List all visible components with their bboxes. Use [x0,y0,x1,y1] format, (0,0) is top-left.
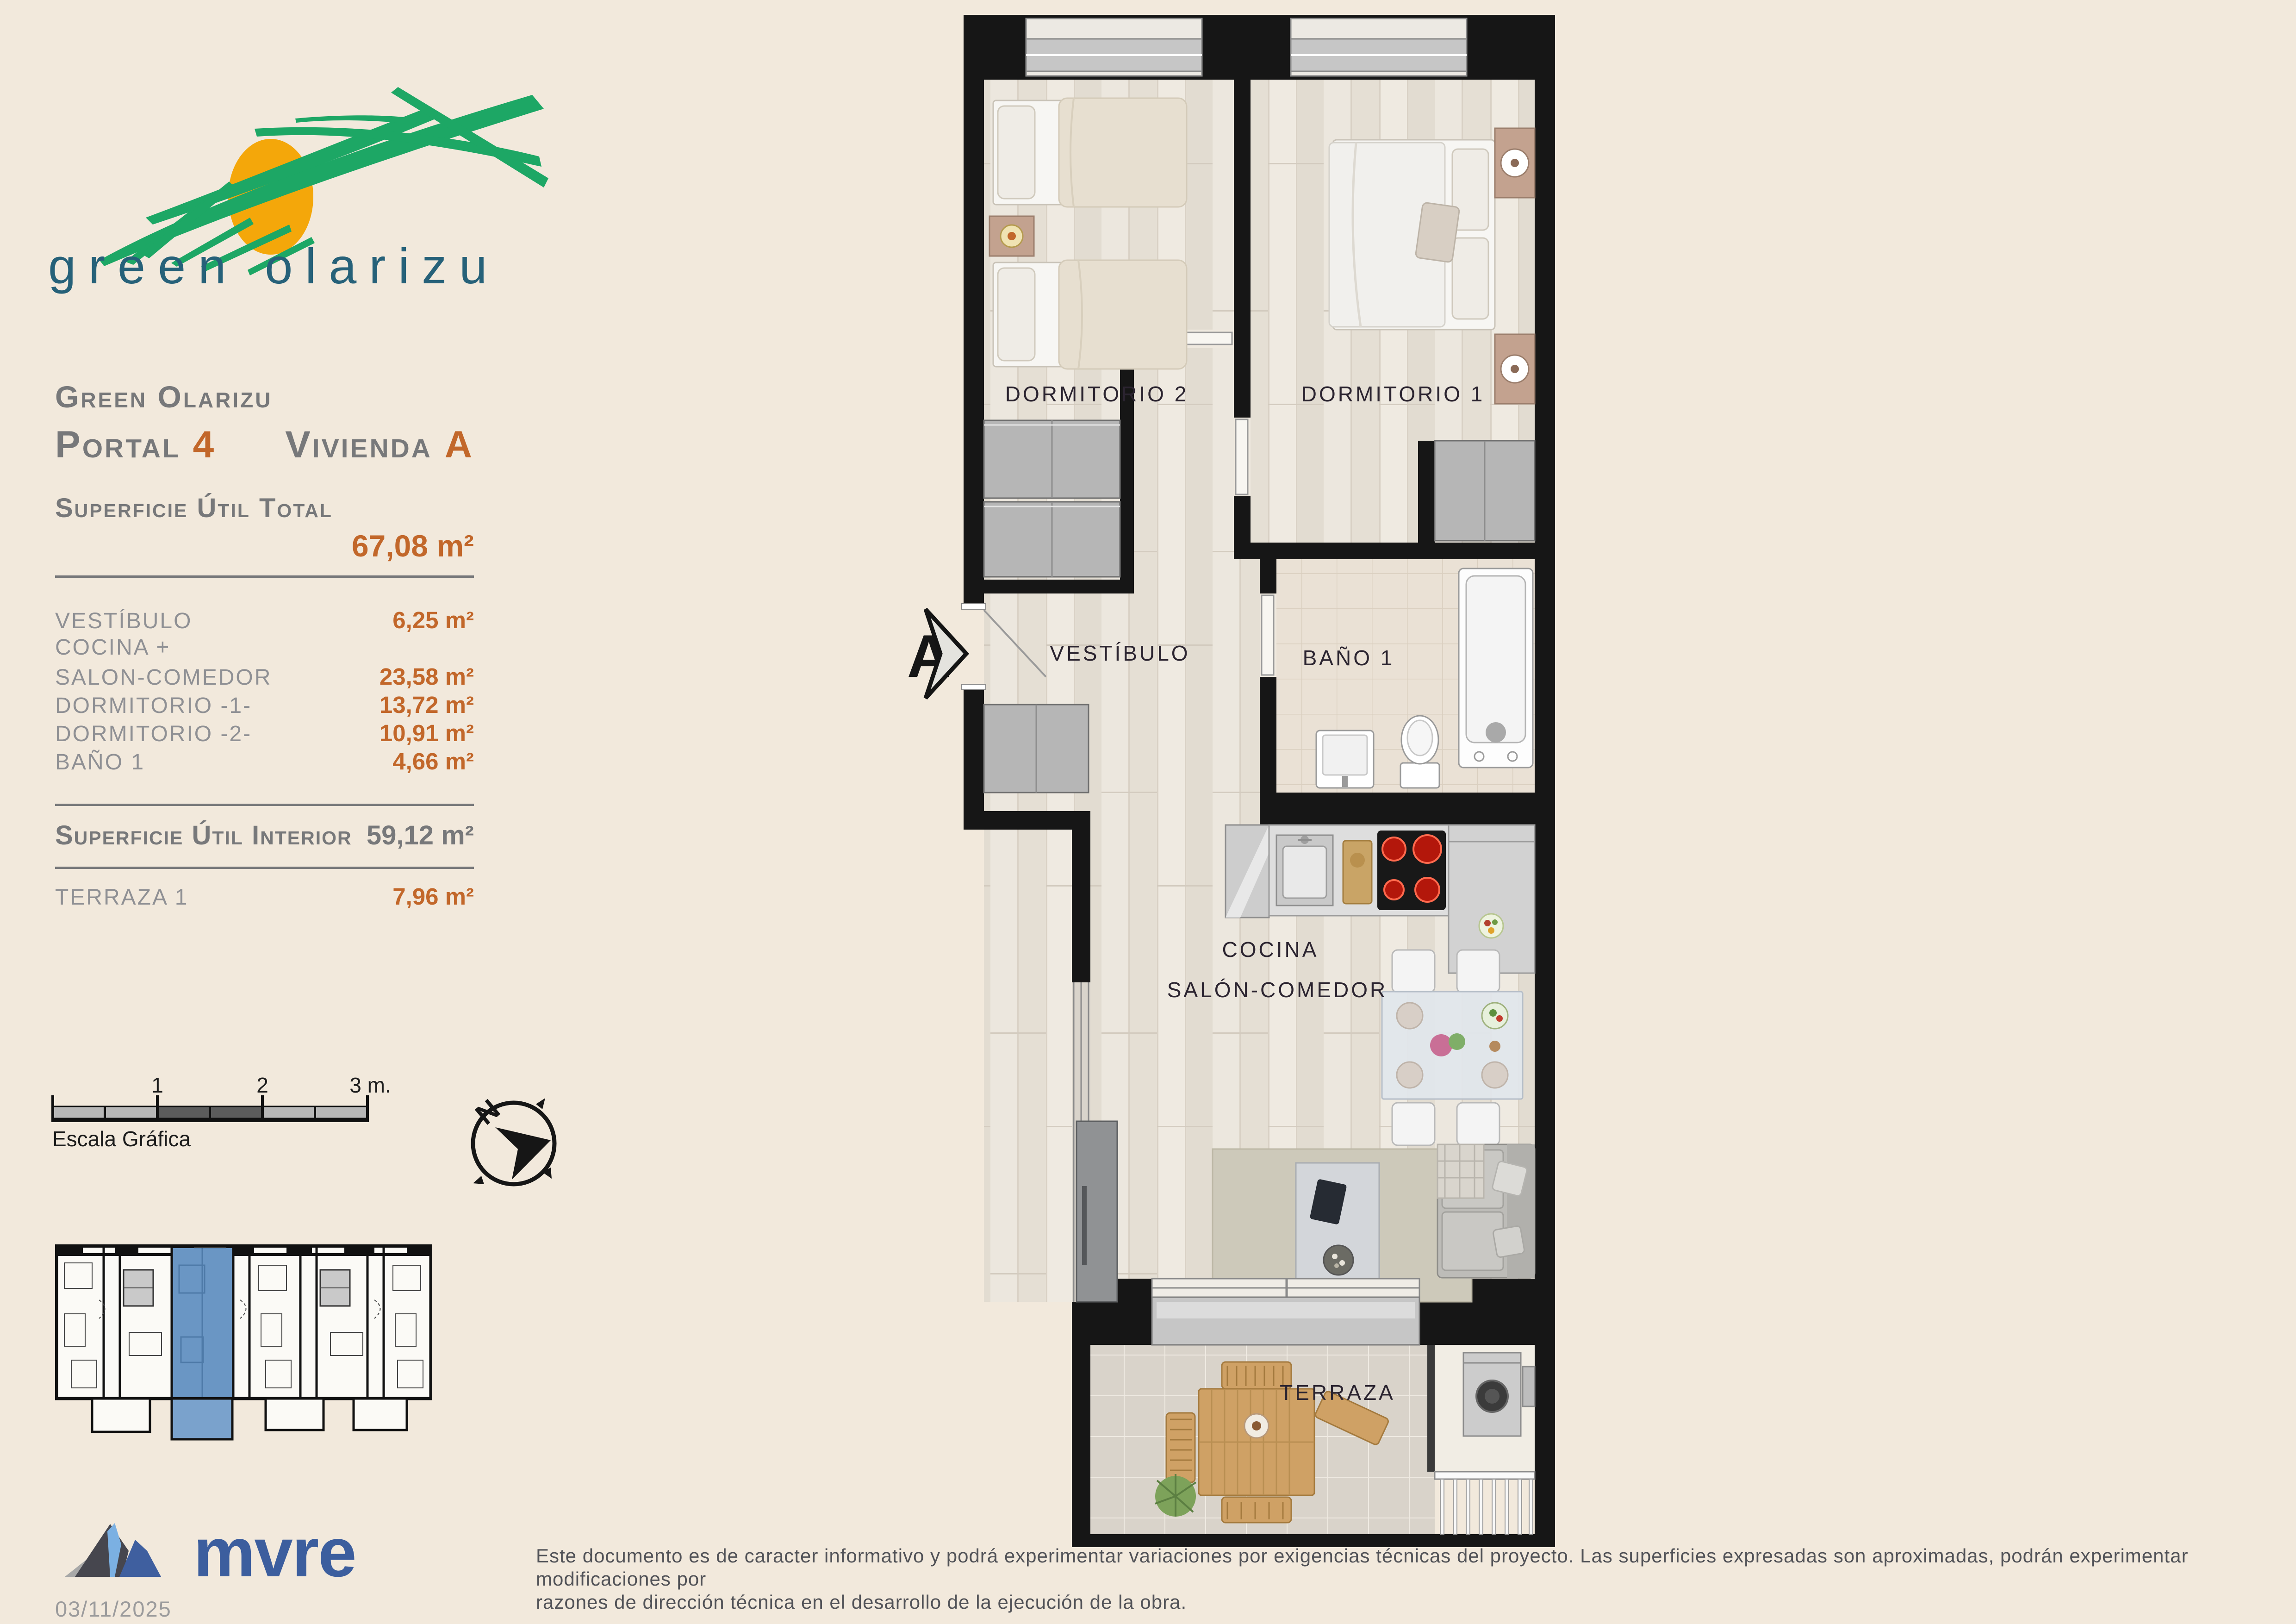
scale-bar-title: Escala Gráfica [52,1127,191,1151]
room-label-bano: BAÑO 1 [1303,646,1395,670]
table-row: SALON-COMEDOR 23,58 m² [55,663,474,691]
project-title: Green Olarizu [55,381,474,413]
floorplan-document: green olarizu Green Olarizu Portal 4 Viv… [0,0,2296,1624]
table-row: DORMITORIO -2- 10,91 m² [55,719,474,748]
terraza-row: TERRAZA 1 7,96 m² [55,883,474,911]
graphic-scale-bar: 1 2 3 m. Escala Gráfica [51,1073,421,1152]
portal-label: Portal [55,423,180,467]
surface-info-panel: Green Olarizu Portal 4 Vivienda A Superf… [55,381,474,911]
divider [55,867,474,869]
disclaimer-line-1: Este documento es de caracter informativ… [536,1544,2295,1591]
room-label-cocina: COCINA [1222,937,1319,962]
scale-tick-label: 3 m. [349,1073,391,1097]
disclaimer-line-2: razones de dirección técnica en el desar… [536,1591,2295,1614]
vivienda-value: A [445,423,474,467]
document-date: 03/11/2025 [55,1596,172,1622]
table-row: VESTÍBULO 6,25 m² [55,606,474,635]
room-label-terraza: TERRAZA [1280,1380,1395,1405]
interior-surface-line: Superficie Útil Interior 59,12 m² [55,820,474,851]
scale-tick-label: 2 [256,1073,268,1097]
room-surface-table: VESTÍBULO 6,25 m² COCINA + SALON-COMEDOR… [55,606,474,776]
table-row: DORMITORIO -1- 13,72 m² [55,691,474,719]
total-label: Superficie Útil Total [55,493,474,524]
mvre-wordmark: mvre [193,1524,356,1580]
room-label-salon: SALÓN-COMEDOR [1167,978,1388,1002]
divider [55,575,474,578]
mvre-logo: mvre [65,1522,356,1580]
room-label-dorm2: DORMITORIO 2 [1005,382,1189,406]
legal-disclaimer: Este documento es de caracter informativ… [536,1544,2295,1614]
divider [55,804,474,806]
north-compass-icon: N [463,1093,574,1199]
total-value: 67,08 m² [55,528,474,563]
green-olarizu-logo: green olarizu [46,79,579,319]
terrace-sliding-door [1152,1279,1419,1345]
room-label-vestibulo: VESTÍBULO [1050,641,1190,665]
vivienda-label: Vivienda [285,423,432,467]
table-row: COCINA + [55,635,474,663]
scale-tick-label: 1 [151,1073,163,1097]
portal-vivienda-line: Portal 4 Vivienda A [55,423,474,467]
section-marker-a: A [907,609,966,698]
portal-value: 4 [193,423,216,467]
room-label-dorm1: DORMITORIO 1 [1301,382,1485,406]
table-row: BAÑO 1 4,66 m² [55,748,474,776]
apartment-floor-plan: DORMITORIO 2 DORMITORIO 1 VESTÍBULO BAÑO… [879,10,1555,1547]
logo-wordmark: green olarizu [48,237,499,295]
mvre-mountains-icon [65,1522,180,1580]
building-key-plan [55,1244,432,1450]
